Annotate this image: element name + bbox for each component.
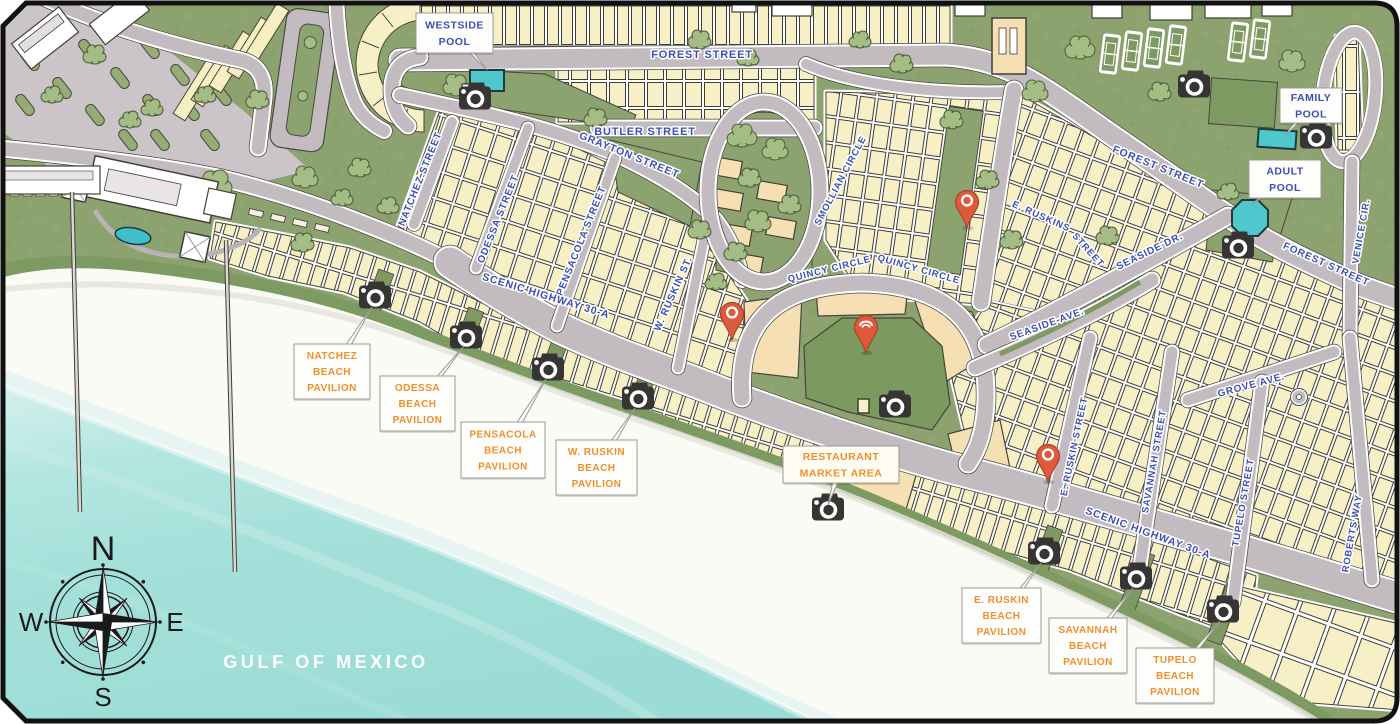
svg-text:PAVILION: PAVILION xyxy=(572,479,622,490)
svg-text:FOREST STREET: FOREST STREET xyxy=(651,49,752,61)
svg-text:SAVANNAH: SAVANNAH xyxy=(1058,625,1117,636)
svg-text:GULF OF MEXICO: GULF OF MEXICO xyxy=(223,652,428,672)
svg-text:E. RUSKIN: E. RUSKIN xyxy=(974,595,1029,606)
svg-text:BEACH: BEACH xyxy=(982,611,1020,622)
svg-text:PAVILION: PAVILION xyxy=(478,462,528,473)
svg-text:BEACH: BEACH xyxy=(1069,641,1107,652)
svg-text:PAVILION: PAVILION xyxy=(307,383,357,394)
svg-text:TUPELO: TUPELO xyxy=(1153,655,1197,666)
svg-text:POOL: POOL xyxy=(1295,108,1327,120)
svg-text:W: W xyxy=(19,607,44,637)
svg-text:ADULT: ADULT xyxy=(1266,165,1303,177)
svg-text:PAVILION: PAVILION xyxy=(977,627,1027,638)
svg-text:PAVILION: PAVILION xyxy=(1150,687,1200,698)
svg-text:WESTSIDE: WESTSIDE xyxy=(425,19,484,31)
svg-text:S: S xyxy=(94,682,111,712)
svg-text:BEACH: BEACH xyxy=(484,446,522,457)
svg-text:BEACH: BEACH xyxy=(577,463,615,474)
svg-text:FAMILY: FAMILY xyxy=(1291,92,1332,104)
svg-text:MARKET AREA: MARKET AREA xyxy=(800,467,883,479)
svg-text:BEACH: BEACH xyxy=(1156,671,1194,682)
svg-text:W. RUSKIN: W. RUSKIN xyxy=(568,447,625,458)
svg-text:E: E xyxy=(166,607,183,637)
svg-text:N: N xyxy=(91,530,116,568)
svg-text:POOL: POOL xyxy=(439,36,471,48)
svg-text:BEACH: BEACH xyxy=(313,367,351,378)
svg-text:PAVILION: PAVILION xyxy=(1063,657,1113,668)
svg-text:PAVILION: PAVILION xyxy=(393,415,443,426)
svg-text:ODESSA: ODESSA xyxy=(395,383,440,394)
svg-text:POOL: POOL xyxy=(1269,182,1301,194)
svg-text:BUTLER STREET: BUTLER STREET xyxy=(594,126,695,138)
svg-text:PENSACOLA: PENSACOLA xyxy=(469,430,536,441)
svg-text:RESTAURANT: RESTAURANT xyxy=(803,451,880,463)
svg-text:BEACH: BEACH xyxy=(398,399,436,410)
svg-text:NATCHEZ: NATCHEZ xyxy=(307,351,358,362)
